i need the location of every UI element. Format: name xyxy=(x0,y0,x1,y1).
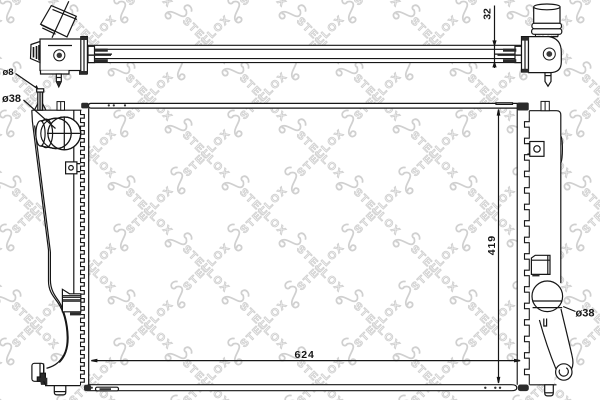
svg-text:32: 32 xyxy=(482,8,494,20)
svg-text:419: 419 xyxy=(486,235,498,255)
svg-text:ø8: ø8 xyxy=(3,67,14,78)
svg-text:ø38: ø38 xyxy=(2,93,21,105)
svg-text:ø38: ø38 xyxy=(576,308,595,320)
svg-text:624: 624 xyxy=(295,349,315,361)
